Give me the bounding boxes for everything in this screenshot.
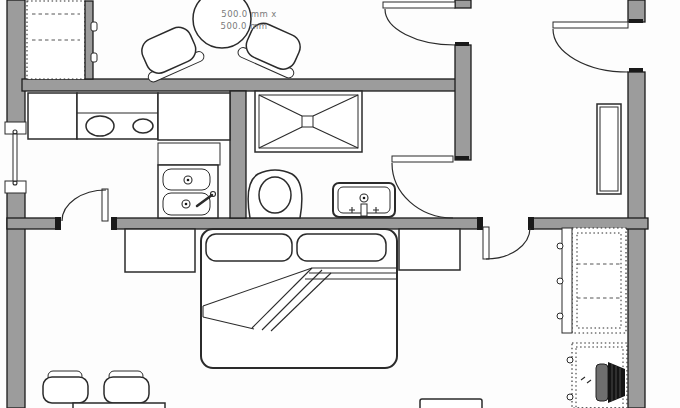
door-hinge-plate (629, 19, 643, 23)
door-leaf (102, 189, 108, 221)
shower-tray (255, 91, 362, 152)
wardrobe-body (27, 1, 85, 79)
pillow-right (297, 234, 386, 261)
door-jamb (111, 217, 117, 230)
nightstand-left (125, 229, 195, 272)
radiator-inner (600, 107, 618, 191)
door-jamb (528, 217, 534, 230)
exterior-wall-right-upper-stub (628, 0, 645, 22)
wardrobe-top-left (27, 1, 97, 79)
nightstand-right (399, 229, 460, 270)
sink-drain-dot (185, 203, 188, 206)
door-leaf (392, 156, 453, 162)
table-dimension-label-line1: 500.0 mm x (221, 9, 276, 19)
basin-faucet (361, 204, 367, 216)
wardrobe-door-strip (562, 228, 572, 333)
stool-seat (104, 377, 149, 403)
interior-wall-horizontal-top (22, 79, 457, 91)
sink-drain-dot (187, 179, 190, 182)
door-jamb (477, 217, 483, 230)
washbasin (333, 183, 395, 217)
interior-wall-middle-center (115, 218, 480, 229)
stool-seat (43, 377, 88, 403)
kitchen-counter-right (158, 93, 230, 140)
interior-wall-middle-left (7, 218, 57, 229)
door-leaf (483, 227, 489, 259)
pillow-left (206, 234, 292, 261)
interior-wall-hall-top-stub (455, 0, 471, 8)
floor-plan-canvas: 500.0 mm x 500.0 mm (0, 0, 680, 408)
stool-left (43, 371, 88, 403)
toilet-bowl (259, 177, 291, 213)
interior-wall-kitchen-bath-divider (230, 91, 246, 218)
shower-drain (302, 116, 313, 127)
window-glazing (13, 134, 17, 181)
wardrobe-right (557, 228, 626, 333)
stool-right (104, 371, 149, 403)
wardrobe-door-strip (85, 1, 93, 79)
wardrobe-body (572, 228, 626, 333)
door-hinge-plate (629, 68, 643, 72)
window-sill-top (5, 122, 26, 134)
table-dimension-label-line2: 500.0 mm (221, 21, 268, 31)
kitchen-sink-unit (158, 165, 218, 218)
basin-drain-dot (363, 197, 366, 200)
office-chair (596, 362, 625, 403)
office-chair-back (596, 364, 608, 401)
desk-hinge (567, 357, 573, 363)
double-bed (201, 229, 397, 368)
toilet (248, 170, 302, 218)
exterior-wall-left-lower (7, 183, 25, 408)
exterior-wall-left-upper (7, 0, 25, 128)
sink-bowl-top (163, 169, 210, 190)
door-hinge-plate (455, 156, 469, 160)
interior-wall-hall-vertical (455, 45, 471, 160)
wardrobe-hinge (557, 313, 563, 319)
table-bottom-left (73, 403, 165, 408)
wardrobe-hinge (91, 22, 97, 31)
door-leaf (383, 2, 455, 8)
hallway (597, 104, 621, 194)
door-leaf (553, 22, 628, 28)
interior-wall-middle-right (530, 218, 648, 229)
furniture-bottom-center (420, 399, 482, 408)
wardrobe-hinge (557, 243, 563, 249)
window-sill-bottom (5, 181, 26, 193)
kitchen-counter-lower (158, 143, 220, 165)
door-hinge-plate (455, 42, 469, 46)
floor-plan-drawing: 500.0 mm x 500.0 mm (0, 0, 680, 408)
wardrobe-hinge (557, 278, 563, 284)
door-jamb (55, 217, 61, 230)
desk-area (567, 343, 627, 408)
desk-hinge (567, 394, 573, 400)
wardrobe-hinge (91, 53, 97, 62)
kitchen-cabinet-left (28, 93, 77, 139)
exterior-wall-right-main (628, 72, 645, 408)
